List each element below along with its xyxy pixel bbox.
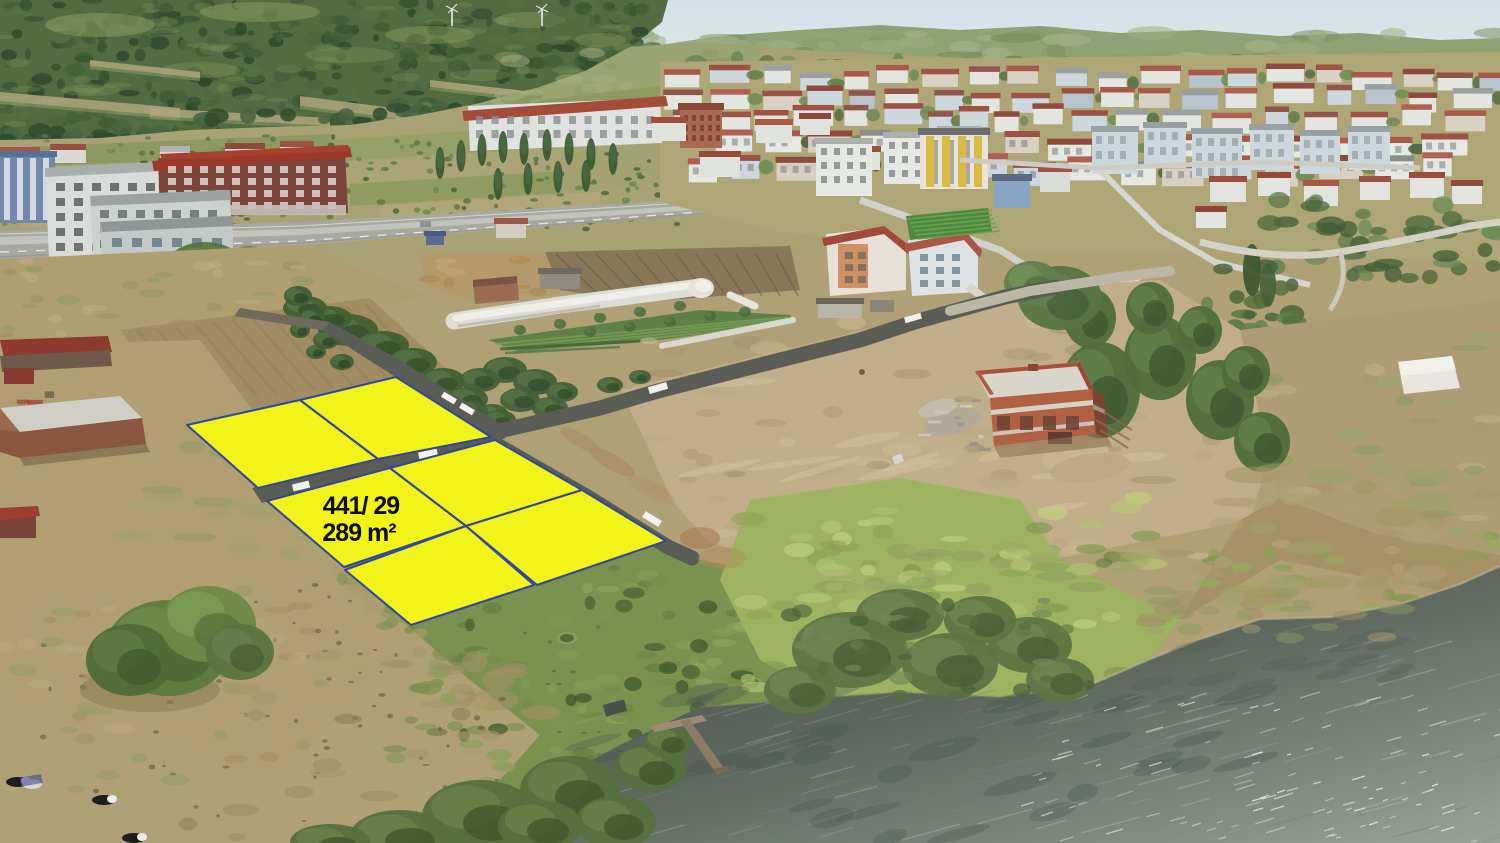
svg-text:441/ 29: 441/ 29	[323, 492, 400, 520]
svg-text:289 m²: 289 m²	[322, 519, 396, 547]
